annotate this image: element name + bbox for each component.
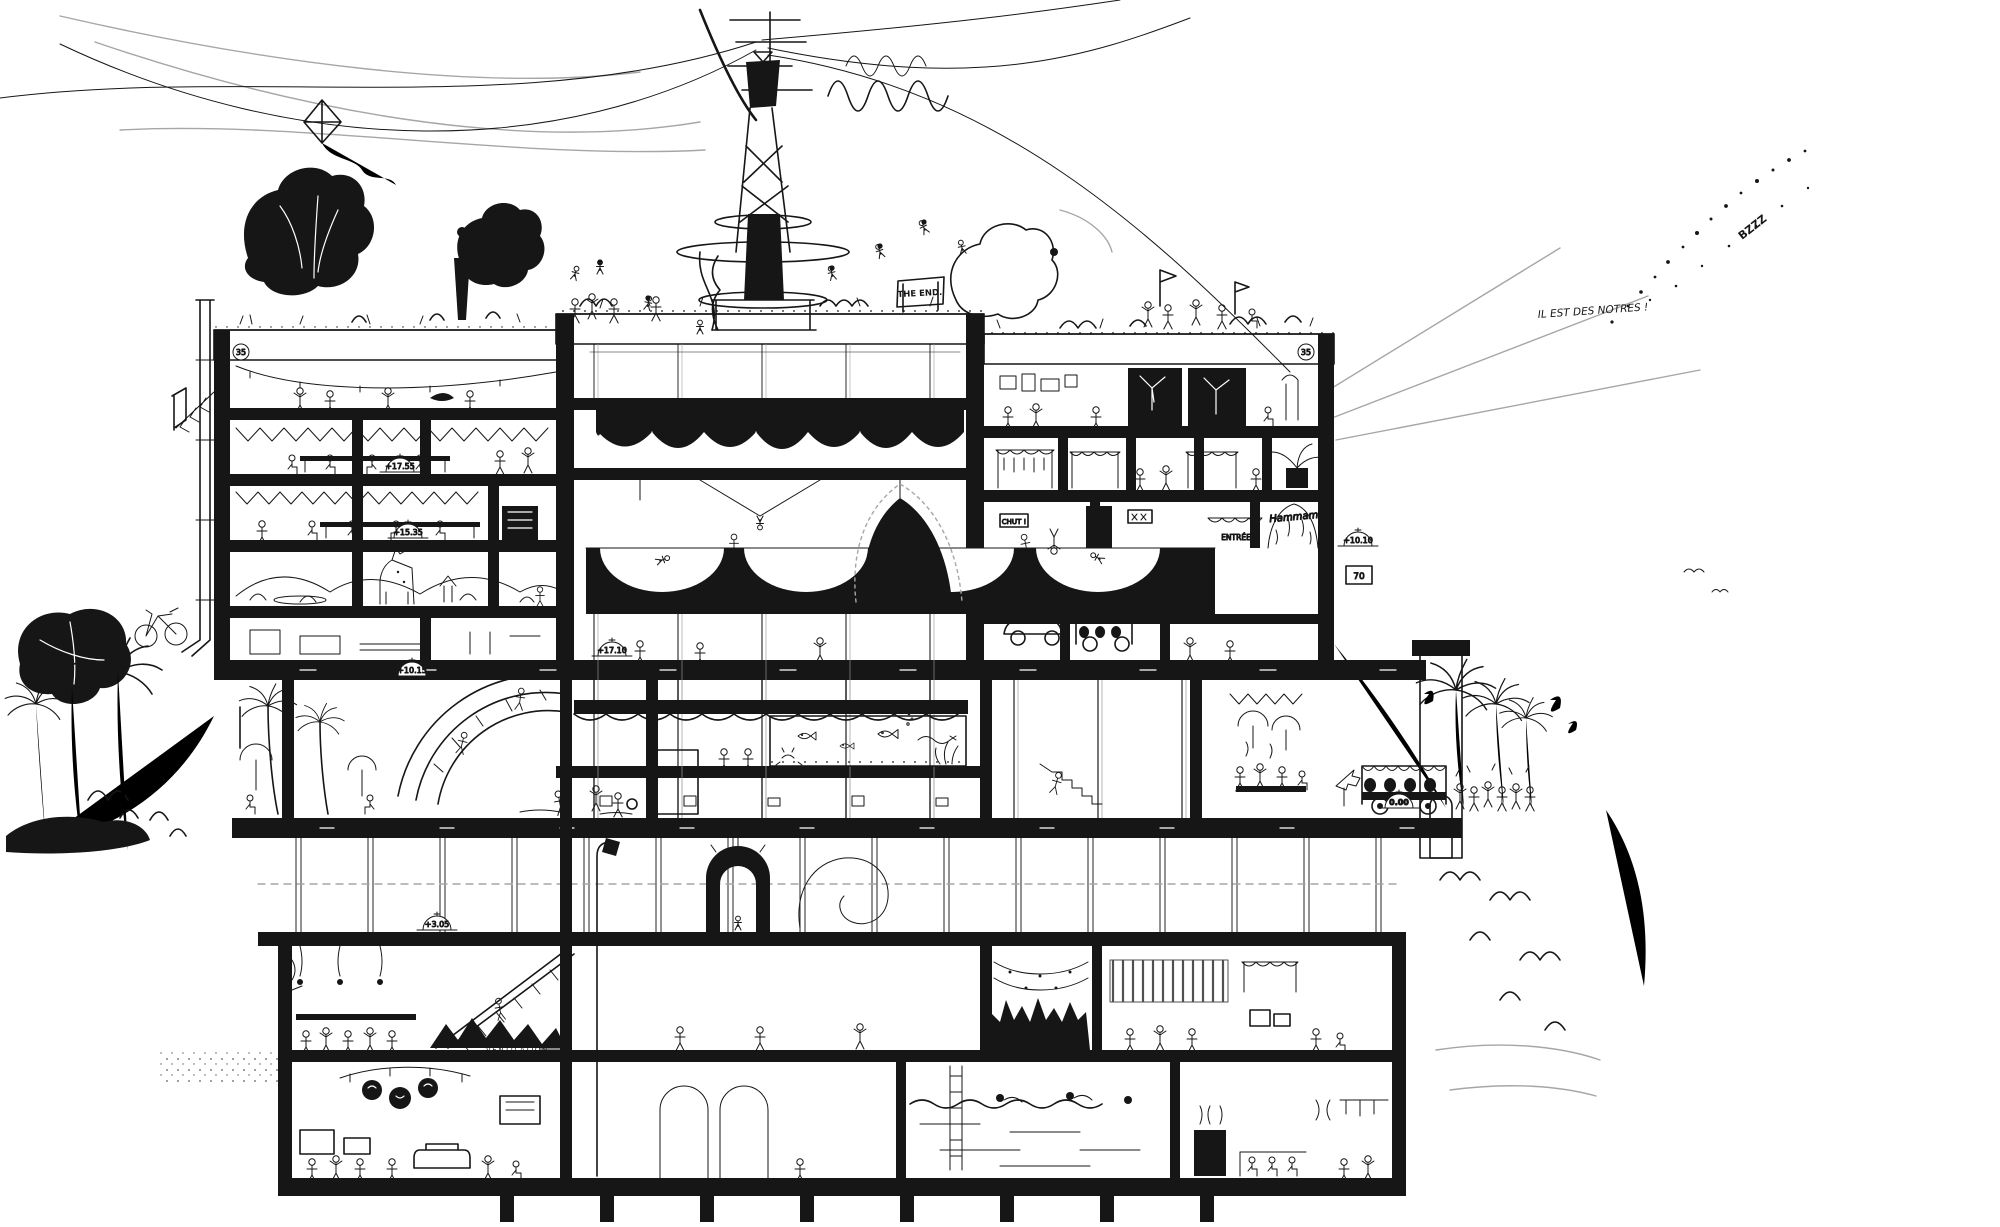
hall-mezzanine	[580, 614, 968, 700]
drain-pipe	[172, 300, 214, 656]
elevation-marker-right-mid: +10.10	[1338, 528, 1378, 546]
palm-trees-right	[1416, 659, 1577, 808]
left-facade-bunting	[176, 392, 214, 432]
parapet-marker-left: 35	[233, 344, 249, 360]
trapeze-hall	[640, 480, 900, 530]
architectural-section-drawing: BZZZ	[0, 0, 2000, 1227]
b2-arcade	[660, 1086, 805, 1183]
svg-text:35: 35	[236, 348, 246, 357]
parapet-marker-right: 35	[1298, 344, 1314, 360]
dark-projection-rooms	[1128, 368, 1298, 426]
stall-sign-text: 70	[1353, 572, 1365, 582]
b2-sauna	[1194, 1100, 1330, 1176]
room-savanna-mural	[236, 548, 560, 607]
chut-sign-text: CHUT !	[1002, 518, 1027, 526]
dust-swarm: BZZZ	[1610, 150, 1809, 324]
svg-text:+15.35: +15.35	[393, 528, 423, 537]
room-art-gallery	[1000, 374, 1101, 431]
clerestory-level	[580, 344, 968, 398]
b2-changing-room	[1339, 1100, 1388, 1183]
svg-text:+10.10: +10.10	[1343, 536, 1373, 545]
svg-text:+17.55: +17.55	[385, 462, 415, 471]
terrace-crowd	[1454, 764, 1535, 811]
entree-sign-text: ENTRÉE	[1221, 533, 1251, 542]
bzzz-text: BZZZ	[1736, 212, 1769, 242]
radio-squiggle-waves	[828, 56, 948, 111]
b2-swimming-pool	[910, 1066, 1140, 1170]
rooftop-tree-mid	[457, 203, 544, 322]
b1-striped-room	[1110, 960, 1228, 1053]
beignets-stand	[1230, 694, 1307, 792]
svg-text:+3.05: +3.05	[425, 920, 450, 929]
wind-turbine	[1010, 198, 1112, 332]
room-market-stalls	[996, 444, 1322, 493]
room-garland-party	[236, 366, 556, 415]
bicycle	[135, 608, 187, 647]
speech-il-est-des-notres: IL EST DES NOTRES !	[1537, 301, 1648, 321]
circus-tent-band	[596, 406, 964, 460]
section-canvas: BZZZ	[0, 0, 2000, 1227]
room-service-crawlspace	[250, 630, 540, 654]
b1-concert-room	[992, 962, 1090, 1050]
left-slope-windmill	[228, 694, 252, 748]
caisson-label-left: CAISSON LUMINEUX	[806, 934, 900, 942]
building-structure	[214, 314, 1462, 1222]
left-terrain	[36, 716, 284, 1082]
grand-hall-palms	[239, 684, 376, 814]
ventilation-label: VENTILATION	[486, 1046, 549, 1054]
the-end-sign: THE END.	[897, 277, 944, 312]
svg-text:+17.10: +17.10	[597, 646, 627, 655]
b1-walkers	[675, 1024, 866, 1051]
spiral-ramp	[398, 675, 566, 804]
foundation-piles	[500, 1196, 1214, 1222]
lower-gallery-band	[580, 778, 968, 818]
svg-text:0.00: 0.00	[1389, 798, 1409, 807]
overhead-wires	[0, 0, 1290, 372]
grotto-cave	[855, 484, 962, 602]
hammam-text: Hammam	[1269, 510, 1319, 525]
giraffe	[380, 548, 414, 604]
caisson-label-right: CAISSON LUMINEUX	[1238, 934, 1332, 942]
carousel-tower	[677, 108, 849, 330]
b2-flea-market	[300, 1067, 540, 1183]
svg-text:+10.15: +10.15	[397, 666, 427, 675]
direction-arrow-sign	[1336, 770, 1360, 806]
flying-birds	[1684, 569, 1728, 592]
b1-bar-crowd	[292, 946, 566, 1055]
svg-text:35: 35	[1301, 348, 1311, 357]
b1-stalls	[1242, 962, 1345, 1053]
rooftop-tree-large-left	[244, 168, 374, 330]
the-end-text: THE END.	[897, 288, 942, 300]
